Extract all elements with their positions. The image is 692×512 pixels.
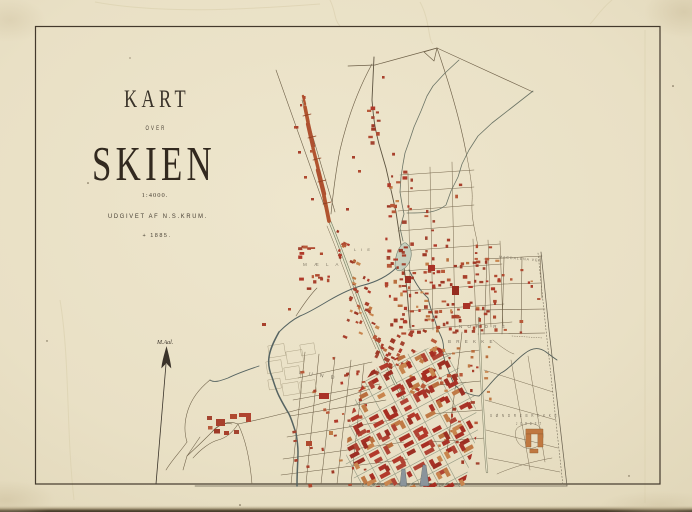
svg-text:1:4000.: 1:4000. bbox=[142, 192, 169, 199]
svg-text:KART: KART bbox=[124, 86, 190, 113]
svg-text:N O R D R E: N O R D R E bbox=[459, 324, 507, 329]
svg-text:L I E: L I E bbox=[354, 247, 372, 252]
svg-text:+ 1885.: + 1885. bbox=[142, 233, 171, 239]
svg-text:B R E K K E: B R E K K E bbox=[448, 339, 495, 344]
svg-text:M Æ L A: M Æ L A bbox=[303, 262, 341, 267]
svg-text:S Ø N D R E B R E K K E: S Ø N D R E B R E K K E bbox=[490, 413, 558, 418]
svg-text:J O R D E T: J O R D E T bbox=[516, 421, 542, 426]
svg-text:OVER: OVER bbox=[146, 125, 167, 132]
svg-text:M.Aal.: M.Aal. bbox=[156, 340, 173, 346]
svg-text:UDGIVET AF N.S.KRUM.: UDGIVET AF N.S.KRUM. bbox=[108, 213, 208, 220]
svg-text:SKIEN: SKIEN bbox=[92, 136, 216, 191]
